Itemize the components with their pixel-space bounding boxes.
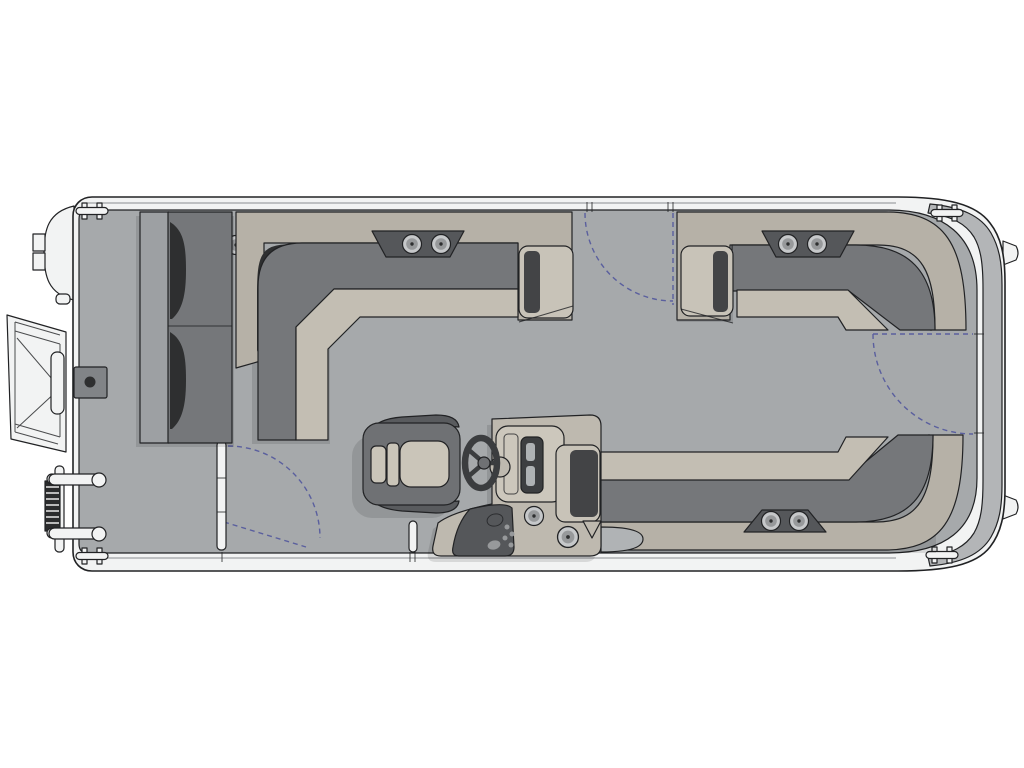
console-compartment-inset <box>570 450 598 517</box>
bow-lounge-seat <box>140 212 169 443</box>
port-armrest-inset <box>524 251 540 313</box>
gauge-slot <box>526 466 535 486</box>
starboard-armrest-inset <box>713 251 728 312</box>
nose-fitting <box>33 253 45 270</box>
gauge-slot <box>526 443 535 461</box>
wheel-hub <box>478 457 490 469</box>
nose-hinge <box>56 294 70 304</box>
cup-holder-icon <box>762 512 781 531</box>
cup-holder-icon <box>432 235 451 254</box>
ladder-knob <box>92 527 106 541</box>
pedestal-socket <box>85 377 96 388</box>
ladder-knob <box>92 473 106 487</box>
pontoon-floor-plan <box>0 0 1024 768</box>
chair-seat-cushion <box>400 441 449 487</box>
bow-exterior <box>7 206 74 452</box>
switch-dot <box>509 543 514 548</box>
chair-mid-pad <box>387 443 399 486</box>
pontoon-nose-icon <box>44 206 74 300</box>
switch-dot <box>503 536 508 541</box>
bow-gate-handle <box>51 352 64 414</box>
stern-lounge <box>596 435 963 553</box>
console-speaker-icon <box>525 507 544 526</box>
nose-fitting <box>33 234 45 251</box>
side-gate-door <box>217 441 226 550</box>
cup-holder-icon <box>779 235 798 254</box>
cup-holder-icon <box>790 512 809 531</box>
floor-plan-canvas <box>0 0 1024 768</box>
bow-lounge <box>136 212 234 447</box>
cup-holder-icon <box>403 235 422 254</box>
captain-chair <box>352 415 460 518</box>
console-speaker-icon <box>558 527 579 548</box>
stern-tab <box>1003 241 1018 265</box>
gate-latch-post <box>409 521 417 552</box>
cup-holder-icon <box>808 235 827 254</box>
ladder-coil-rungs <box>46 487 59 523</box>
chair-back-pad <box>371 446 386 483</box>
bow-boarding-gate <box>7 315 66 452</box>
switch-dot <box>510 532 515 537</box>
switch-dot <box>505 525 510 530</box>
